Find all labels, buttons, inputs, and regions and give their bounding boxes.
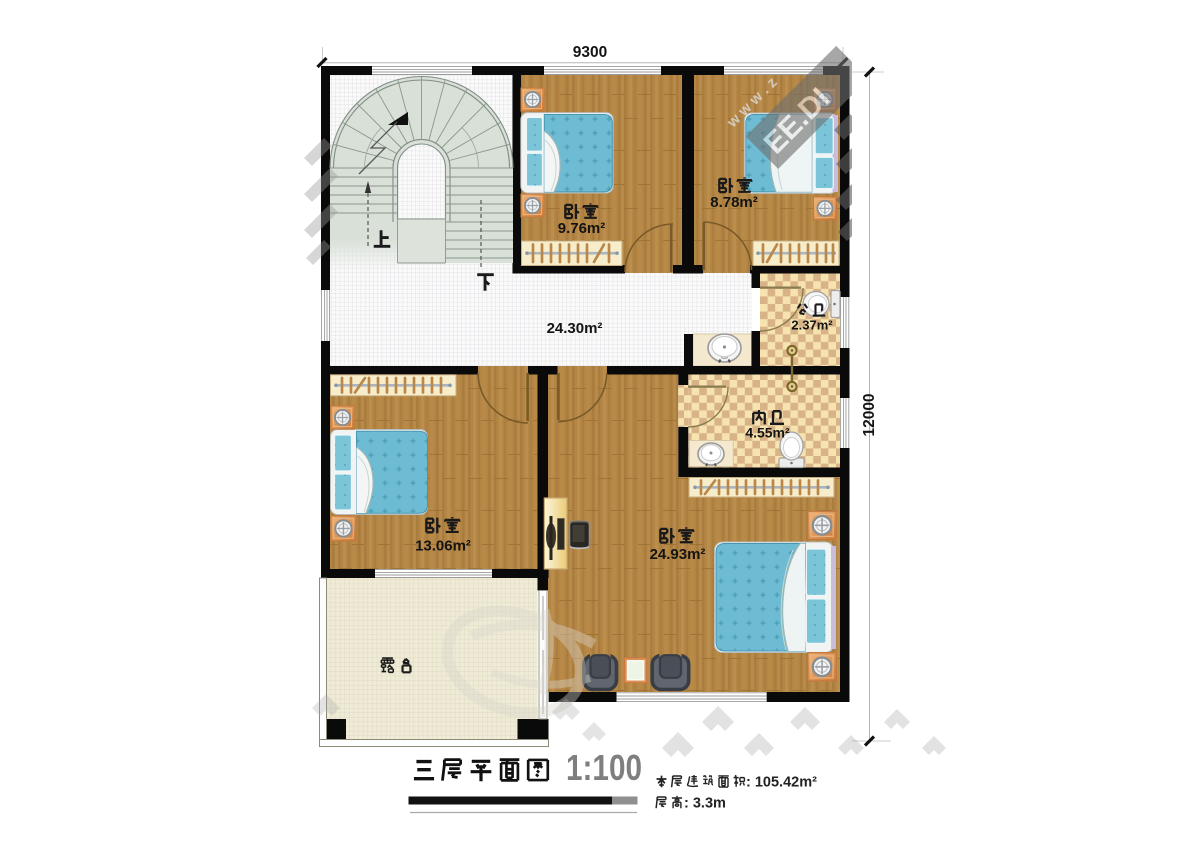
- svg-text:2.37m²: 2.37m²: [791, 318, 833, 333]
- svg-text:12000: 12000: [861, 393, 878, 436]
- svg-text:13.06m²: 13.06m²: [415, 538, 471, 555]
- svg-text:1:100: 1:100: [566, 747, 642, 788]
- svg-text:: 105.42m²: : 105.42m²: [746, 775, 817, 791]
- svg-text:: 3.3m: : 3.3m: [684, 796, 726, 812]
- svg-text:9300: 9300: [573, 44, 607, 61]
- svg-text:24.93m²: 24.93m²: [650, 546, 706, 563]
- svg-text:24.30m²: 24.30m²: [547, 320, 603, 337]
- svg-text:4.55m²: 4.55m²: [745, 425, 790, 441]
- svg-text:8.78m²: 8.78m²: [710, 194, 758, 211]
- svg-text:9.76m²: 9.76m²: [558, 220, 606, 237]
